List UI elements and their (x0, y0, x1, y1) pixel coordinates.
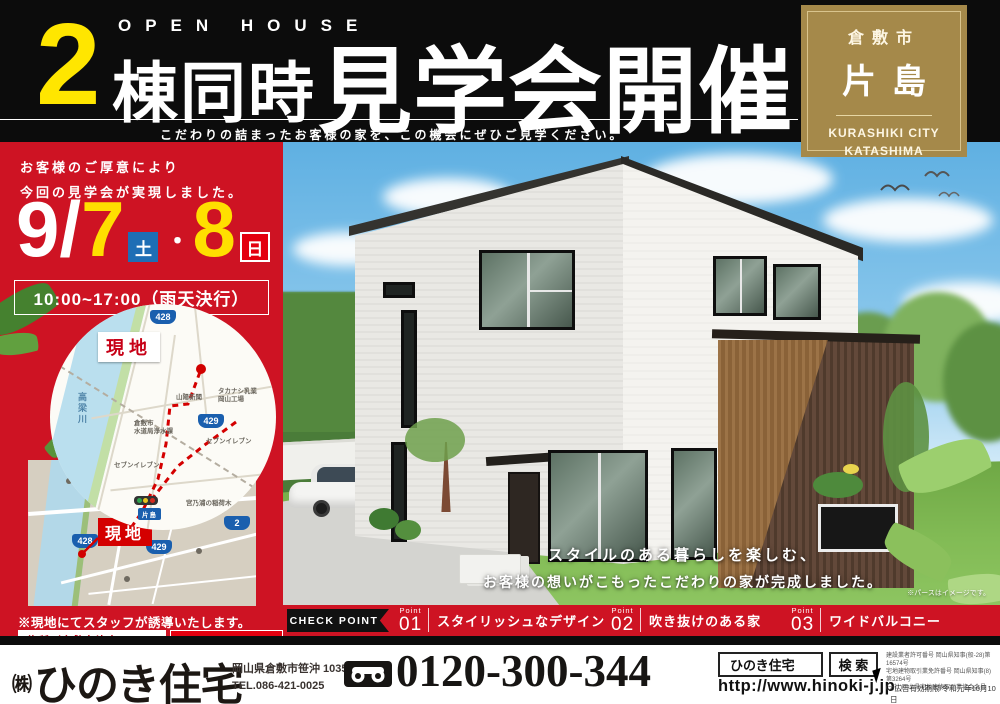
header-number: 2 (36, 6, 101, 122)
map-label-school: 倉敷市立 連島北小学校 (222, 512, 261, 528)
badge-english: KURASHIKI CITY KATASHIMA (808, 124, 960, 160)
freedial-number: 0120-300-344 (396, 645, 651, 697)
checkpoint-ribbon: CHECK POINT (287, 609, 389, 632)
flyer: 2 OPEN HOUSE 棟同時 見学会開催 こだわりの詰まったお客様の家を、こ… (0, 0, 1000, 704)
ad-validity: ○広告有効期限/令和元年10月10日 (890, 683, 1000, 704)
window-mullion (529, 290, 572, 292)
map-label-suido: 倉敷市 水道局浄水課 (134, 420, 173, 436)
map-poi-dot (124, 576, 130, 582)
garden-tree-foliage (405, 418, 465, 462)
caption-line2: お客様の想いがこもったこだわりの家が完成しました。 (423, 572, 943, 592)
map-label-sanyo: 山陽新聞 (176, 394, 202, 402)
traffic-light-yellow (143, 498, 148, 503)
point-divider (820, 608, 821, 632)
map-label-takanashi: タカナシ乳業 岡山工場 (218, 388, 257, 404)
window-mullion (740, 259, 742, 313)
route-shield-428: 428 (150, 310, 176, 324)
map-label-line: 倉敷市立 (222, 512, 261, 520)
badge-area-en: KATASHIMA (808, 142, 960, 160)
scene-caption: スタイルのある暮らしを楽しむ、 お客様の想いがこもったこだわりの家が完成しました… (423, 544, 943, 592)
point-number: 03 (791, 615, 814, 634)
company-logo: ㈱ ひのき住宅 (12, 651, 243, 704)
map-label-seven1: セブンイレブン (206, 438, 252, 446)
company-mark: ㈱ (12, 668, 32, 697)
point-number: 01 (399, 615, 422, 634)
company-name: ひのき住宅 (34, 651, 243, 704)
date-month: 9/ (16, 190, 81, 268)
map-label-line: 連島北小学校 (222, 520, 261, 528)
point-text: スタイリッシュなデザイン (437, 611, 605, 630)
window-small (383, 282, 415, 298)
badge-city: 倉敷市 (808, 24, 960, 48)
house-rendering: スタイルのある暮らしを楽しむ、 お客様の想いがこもったこだわりの家が完成しました… (283, 142, 1000, 636)
checkpoint-bar: CHECK POINT Point 01 スタイリッシュなデザイン Point … (283, 605, 1000, 636)
point-number: 02 (611, 615, 634, 634)
flower-bed (813, 472, 863, 498)
badge-area: 片島 (808, 54, 960, 103)
checkpoint-point: Point 03 (791, 607, 814, 634)
badge-divider (836, 115, 932, 116)
location-badge: 倉敷市 片島 KURASHIKI CITY KATASHIMA (801, 5, 967, 157)
date-separator: ・ (164, 221, 190, 258)
date-sunday-badge: 日 (240, 232, 270, 262)
footer-divider-band (0, 636, 1000, 645)
window-upper-side (713, 256, 767, 316)
birds-icon (873, 164, 973, 208)
map-label-line: 水道局浄水課 (134, 428, 173, 436)
checkpoint-item: Point 01 スタイリッシュなデザイン (399, 607, 605, 634)
window-slit (401, 310, 417, 428)
site-dot (78, 550, 86, 558)
route-shield-429: 429 (198, 414, 224, 428)
flowers-yellow (843, 464, 859, 474)
map-label-line: タカナシ乳業 (218, 388, 257, 396)
checkpoint-item: Point 03 ワイドバルコニー (791, 607, 941, 634)
point-divider (428, 608, 429, 632)
website-url: http://www.hinoki-j.jp (718, 677, 895, 696)
river-label: 高梁川 (76, 392, 89, 425)
render-disclaimer: ※パースはイメージです。 (907, 588, 990, 598)
date-day-7: 7 (81, 190, 124, 268)
header-tagline: こだわりの詰まったお客様の家を、この機会にぜひご見学ください。 (160, 126, 625, 143)
checkpoint-item: Point 02 吹き抜けのある家 (611, 607, 761, 634)
header-title-left: 棟同時 (112, 40, 316, 136)
point-text: ワイドバルコニー (829, 611, 941, 630)
search-term-box: ひのき住宅 (718, 652, 823, 677)
event-intro-line1: お客様のご厚意により (20, 156, 244, 181)
badge-city-en: KURASHIKI CITY (808, 124, 960, 142)
checkpoint-point: Point 02 (611, 607, 634, 634)
freedial-icon (344, 659, 392, 689)
window-upper-side (773, 264, 821, 320)
window-upper (479, 250, 575, 330)
call-note: 迷ったらお電話下さい。 (170, 630, 283, 636)
staff-note: ※現地にてスタッフが誘導いたします。 (18, 612, 251, 631)
event-date: 9/ 7 土 ・ 8 日 (16, 190, 274, 268)
map-label-katashima: 片島 (138, 508, 161, 520)
point-divider (640, 608, 641, 632)
search-button-label: 検 索 (839, 658, 869, 673)
map-label-line: 倉敷市 (134, 420, 173, 428)
traffic-light-red (150, 498, 155, 503)
traffic-light-icon (134, 496, 158, 505)
search-mockup: ひのき住宅 検 索 (718, 652, 878, 677)
site-label-circle-map: 現地 (98, 332, 160, 362)
map-poi-dot (196, 548, 202, 554)
caption-line1: スタイルのある暮らしを楽しむ、 (423, 544, 943, 565)
shrub (395, 520, 421, 540)
address-row: 住所／倉敷市片島町905-16付近 迷ったらお電話下さい。 (18, 630, 283, 636)
search-button-box: 検 索 (829, 652, 879, 677)
traffic-light-green (137, 498, 142, 503)
site-dot (196, 364, 206, 374)
point-text: 吹き抜けのある家 (649, 611, 761, 630)
company-address: 岡山県倉敷市笹沖 1035-1 TEL.086-421-0025 (232, 661, 357, 694)
date-day-8: 8 (192, 190, 235, 268)
map-label-line: 岡山工場 (218, 396, 257, 404)
map-label-miyanoura: 宮乃浦の稲荷木 (186, 500, 232, 508)
company-address-line: 岡山県倉敷市笹沖 1035-1 (232, 661, 357, 678)
access-map-circle: 428 429 現地 高梁川 山陽新聞 タカナシ乳業 岡山工場 倉敷市 水道局浄… (50, 304, 276, 530)
legal-line1: 建設業者許可番号 岡山県知事(般-28)第16574号 (886, 652, 996, 668)
footer: ㈱ ひのき住宅 岡山県倉敷市笹沖 1035-1 TEL.086-421-0025… (0, 645, 1000, 704)
event-sidebar: お客様のご厚意により 今回の見学会が実現しました。 9/ 7 土 ・ 8 日 1… (0, 142, 283, 636)
header-divider (0, 119, 798, 120)
site-address: 住所／倉敷市片島町905-16付近 (18, 630, 166, 636)
map-label-seven2: セブンイレブン (114, 462, 160, 470)
location-badge-inner: 倉敷市 片島 KURASHIKI CITY KATASHIMA (807, 11, 961, 151)
date-saturday-badge: 土 (128, 232, 158, 262)
checkpoint-point: Point 01 (399, 607, 422, 634)
car-wheel (313, 500, 330, 517)
legal-line2: 宅地建物取引業免許番号 岡山県知事(8)第3264号 (886, 668, 996, 684)
company-tel: TEL.086-421-0025 (232, 678, 357, 695)
